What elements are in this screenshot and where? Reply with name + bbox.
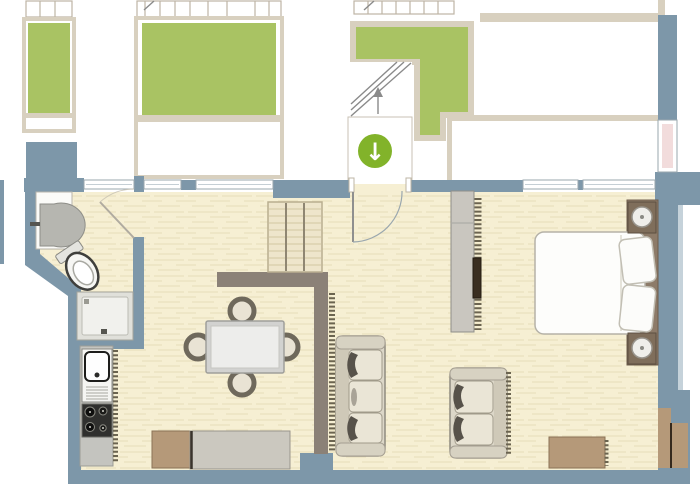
neighbor-wall-top	[480, 13, 658, 22]
partition-horizontal	[217, 272, 328, 287]
wall-right-upper	[658, 205, 678, 390]
sideboard-gray	[190, 431, 290, 469]
wall-pier-2	[181, 180, 196, 190]
tv	[473, 258, 481, 298]
partition-vertical	[314, 287, 328, 454]
right-stair-railing	[354, 1, 454, 14]
sideboard	[152, 431, 290, 469]
neighbor-wall-left	[447, 121, 452, 180]
stove	[82, 404, 112, 437]
wall-bottom	[68, 470, 690, 484]
wall-top-right	[410, 180, 523, 192]
dresser	[549, 437, 605, 468]
wall-corner-ne	[655, 172, 700, 205]
pillow-bottom	[619, 284, 657, 332]
wall-light-edge	[678, 205, 683, 390]
entrance-marker: ↓	[358, 134, 392, 168]
dining-chair-top	[230, 299, 254, 323]
middle-balcony-floor	[142, 23, 276, 115]
wall-edge-sliver	[0, 180, 4, 264]
side-window-glass	[662, 124, 673, 168]
wall-pier-3	[273, 180, 350, 198]
wall-neighbor-right	[658, 15, 677, 120]
wall-bathroom-vertical	[133, 237, 144, 349]
sofa-two-seat	[450, 368, 507, 458]
side-window	[658, 120, 677, 172]
wall-pier-1	[134, 176, 144, 192]
staircase	[350, 62, 412, 117]
pillow-top	[618, 236, 656, 285]
shower-head	[84, 299, 89, 304]
middle-balcony-railing	[137, 1, 281, 17]
shower	[77, 292, 133, 340]
floor-plan-svg: ↓	[0, 0, 700, 500]
wall-block-left	[26, 142, 77, 180]
left-balcony-railing	[26, 1, 72, 17]
wall-stub-bottom	[300, 453, 333, 471]
entrance-arrow-icon: ↓	[365, 138, 385, 166]
balcony-dividers	[24, 0, 665, 180]
sink-knob	[95, 373, 100, 378]
shower-drain	[101, 329, 107, 334]
dining-chair-bottom	[230, 371, 254, 395]
kitchen-sink	[82, 349, 112, 402]
sideboard-brown	[152, 431, 190, 468]
sofa-three-seat	[336, 336, 385, 456]
left-balcony-floor	[28, 23, 70, 113]
neighbor-wall-mid	[447, 115, 658, 121]
hallway-shelf	[268, 202, 322, 272]
floor-plan: ↓	[0, 0, 700, 500]
sink-faucet	[30, 222, 40, 226]
wall-window-mullion	[578, 180, 583, 190]
